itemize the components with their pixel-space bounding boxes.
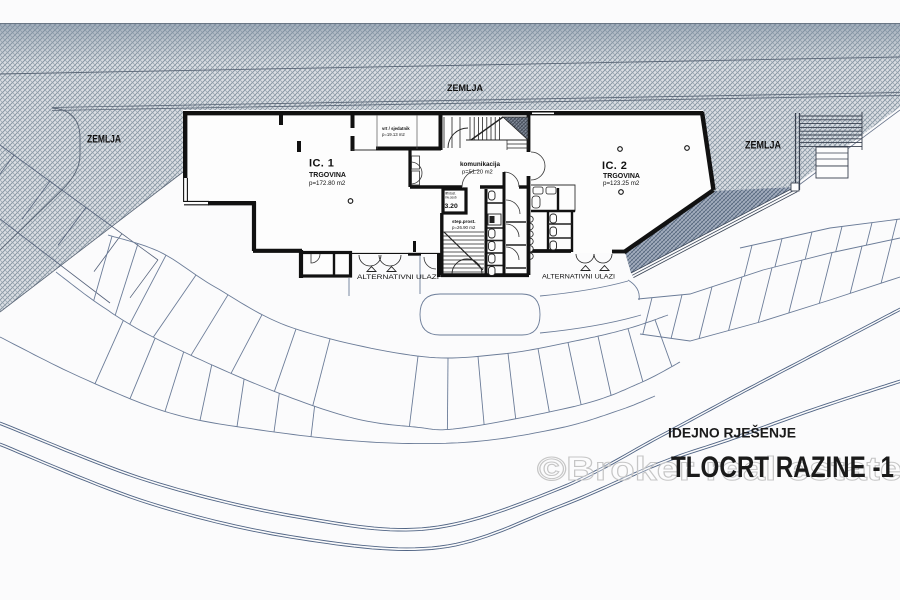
svg-text:ZEMLJA: ZEMLJA (745, 140, 781, 152)
svg-text:p=26.90 m2: p=26.90 m2 (452, 225, 476, 230)
svg-text:IC. 1: IC. 1 (309, 158, 334, 170)
svg-text:3.20: 3.20 (445, 203, 458, 210)
svg-text:ZEMLJA: ZEMLJA (447, 83, 483, 94)
svg-text:step.prost.: step.prost. (452, 219, 475, 224)
svg-text:p=123.25 m2: p=123.25 m2 (603, 180, 640, 187)
svg-text:ZEMLJA: ZEMLJA (87, 134, 121, 146)
svg-text:TRGOVINA: TRGOVINA (309, 172, 346, 179)
svg-text:komunikacija: komunikacija (460, 161, 500, 168)
svg-text:inv.osob: inv.osob (445, 195, 457, 199)
svg-text:p=51.20 m2: p=51.20 m2 (462, 170, 493, 176)
svg-text:ALTERNATIVNI ULAZI: ALTERNATIVNI ULAZI (357, 274, 439, 281)
svg-text:ALTERNATIVNI ULAZI: ALTERNATIVNI ULAZI (542, 274, 615, 281)
svg-text:IDEJNO RJEŠENJE: IDEJNO RJEŠENJE (668, 424, 796, 441)
svg-text:p=19.13 m2: p=19.13 m2 (382, 132, 405, 137)
svg-text:vrt / sjedatnik: vrt / sjedatnik (382, 126, 410, 131)
svg-text:IC. 2: IC. 2 (602, 160, 627, 172)
svg-text:TRGOVINA: TRGOVINA (603, 173, 640, 180)
svg-text:TLOCRT RAZINE -1: TLOCRT RAZINE -1 (671, 451, 894, 484)
svg-text:p=172.80 m2: p=172.80 m2 (309, 180, 346, 187)
